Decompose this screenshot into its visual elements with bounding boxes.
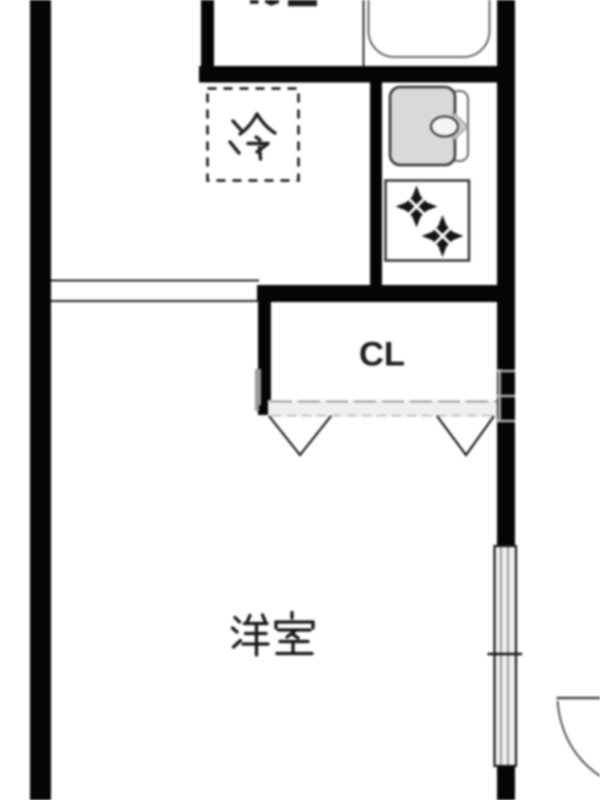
svg-text:CL: CL bbox=[359, 336, 405, 374]
